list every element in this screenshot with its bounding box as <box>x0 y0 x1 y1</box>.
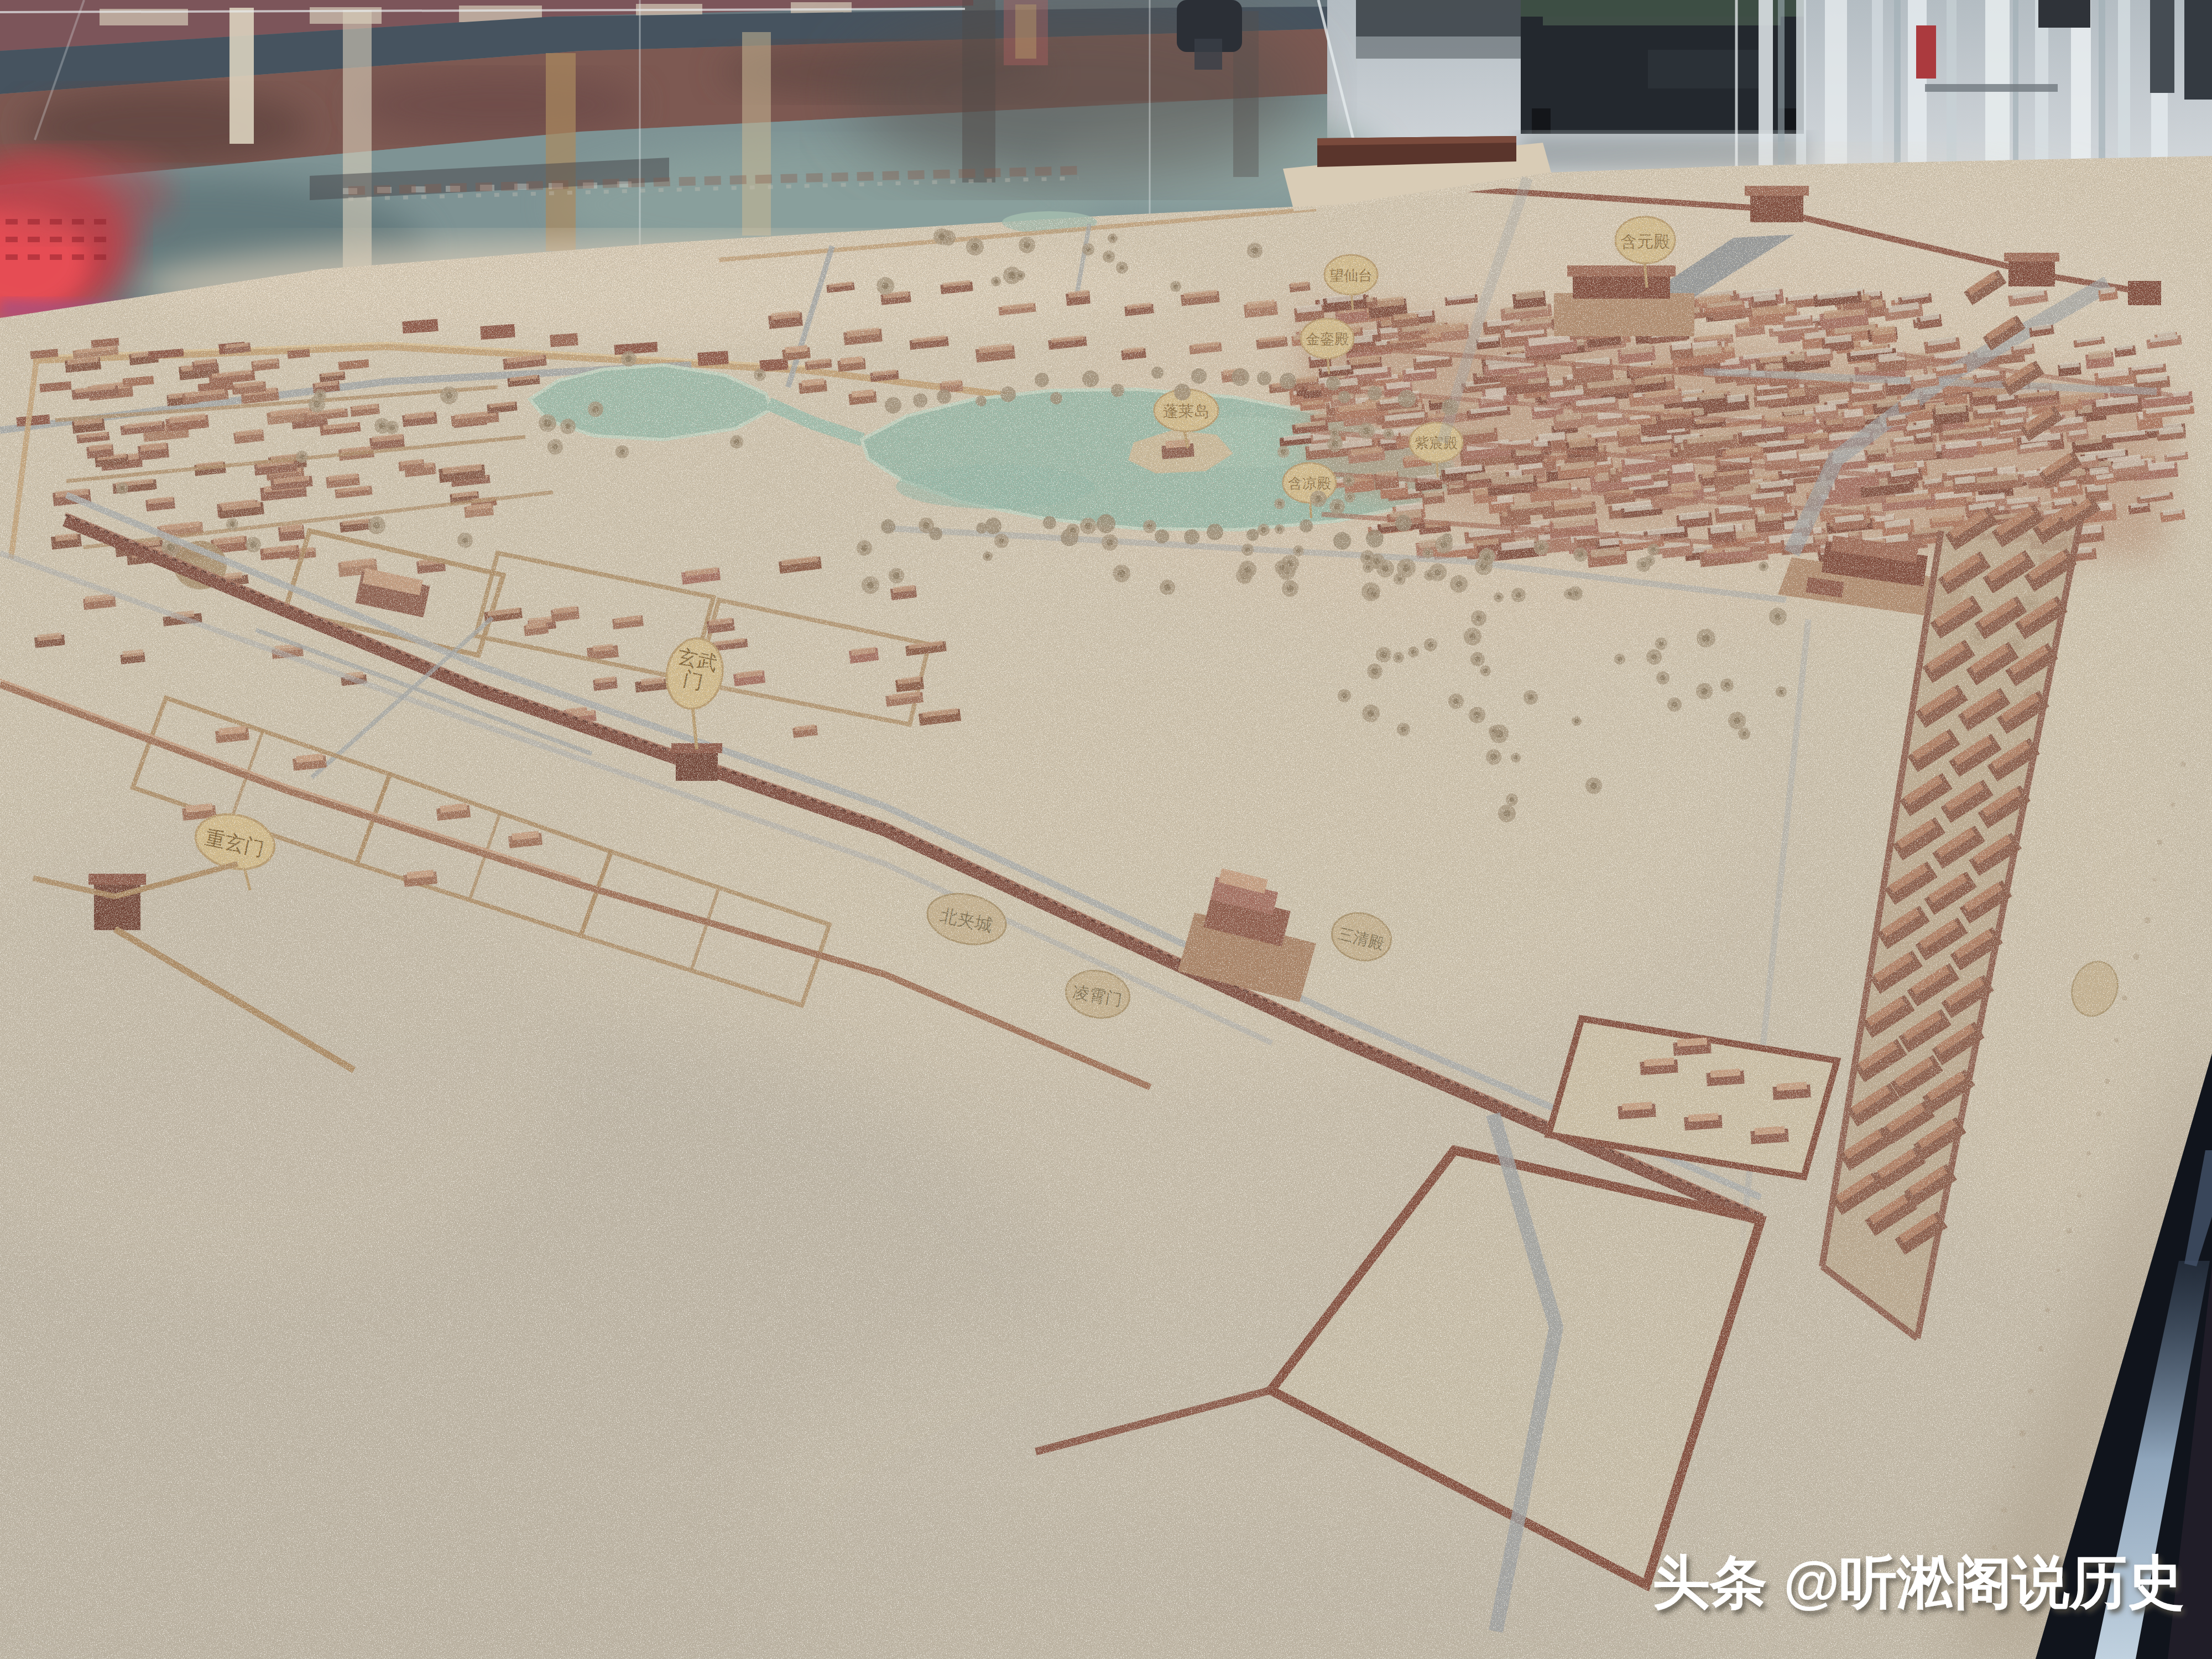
svg-text:头条 @听淞阁说历史: 头条 @听淞阁说历史 <box>1652 1550 2184 1614</box>
